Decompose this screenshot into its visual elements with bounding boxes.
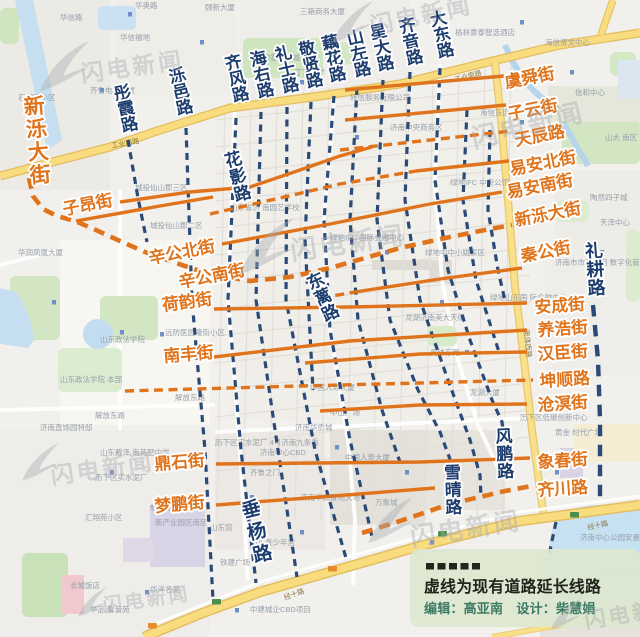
svg-text:华润凤凰大厦: 华润凤凰大厦 — [18, 247, 63, 257]
svg-text:中国人寿大厦: 中国人寿大厦 — [345, 452, 390, 462]
svg-text:格林豪泰智选酒店: 格林豪泰智选酒店 — [455, 27, 515, 37]
svg-text:华信路: 华信路 — [60, 12, 83, 22]
svg-text:养浩街: 养浩街 — [536, 317, 589, 341]
svg-text:山东政法学院: 山东政法学院 — [100, 334, 145, 344]
svg-text:济南中心公园安置项目 和下石河村改造项目: 济南中心公园安置项目 和下石河村改造项目 — [580, 532, 640, 542]
svg-text:黄金 时代广场: 黄金 时代广场 — [555, 427, 603, 437]
svg-text:城投仙山郡三区: 城投仙山郡三区 — [135, 182, 188, 192]
svg-text:济南中心CBD: 济南中心CBD — [260, 447, 306, 457]
svg-text:龙湖大厦: 龙湖大厦 — [470, 387, 500, 397]
svg-text:安成街: 安成街 — [534, 294, 586, 317]
svg-text:绿地IFC 中央公馆: 绿地IFC 中央公馆 — [450, 177, 510, 187]
svg-text:解放东路: 解放东路 — [95, 410, 125, 420]
svg-text:齐川路: 齐川路 — [537, 477, 589, 500]
svg-text:济南中央商务区: 济南中央商务区 — [390, 122, 443, 132]
svg-text:龙湖济南美大天街: 龙湖济南美大天街 — [405, 312, 465, 322]
svg-text:大: 大 — [27, 140, 50, 165]
svg-text:虚线为现有道路延长线路: 虚线为现有道路延长线路 — [424, 577, 601, 596]
svg-text:济南华侨城: 济南华侨城 — [295, 422, 333, 432]
svg-text:象春街: 象春街 — [537, 449, 589, 472]
svg-text:华信福地: 华信福地 — [120, 32, 150, 42]
svg-text:街: 街 — [28, 162, 52, 188]
svg-text:坤顺路: 坤顺路 — [539, 368, 591, 391]
svg-text:绿地中中小姚家区: 绿地中中小姚家区 — [425, 247, 485, 257]
svg-text:山东馆: 山东馆 — [210, 522, 233, 532]
svg-text:汇翔苑小区: 汇翔苑小区 — [85, 512, 123, 522]
svg-text:新产业园区南区: 新产业园区南区 — [155, 517, 208, 527]
svg-text:新: 新 — [23, 93, 46, 119]
svg-text:历下区实水泥厂 4号济南九条香: 历下区实水泥厂 4号济南九条香 — [215, 437, 319, 447]
svg-text:路: 路 — [445, 497, 463, 518]
svg-text:泺: 泺 — [25, 117, 48, 142]
svg-text:沧溟街: 沧溟街 — [537, 392, 589, 415]
svg-text:转信服务有限公司: 转信服务有限公司 — [350, 92, 410, 102]
svg-text:长城饭店: 长城饭店 — [70, 580, 100, 590]
svg-text:陶然四子城: 陶然四子城 — [590, 192, 628, 202]
svg-text:齐鲁之门: 齐鲁之门 — [250, 467, 280, 477]
svg-text:三箱商务大厦: 三箱商务大厦 — [300, 6, 345, 16]
svg-text:海信贤文中心: 海信贤文中心 — [545, 37, 590, 47]
svg-text:汉臣街: 汉臣街 — [537, 341, 589, 364]
svg-text:中建城企CBD项目: 中建城企CBD项目 — [250, 604, 311, 614]
svg-text:路: 路 — [587, 276, 607, 298]
svg-text:路: 路 — [497, 461, 516, 482]
svg-text:颐新大厦: 颐新大厦 — [205, 2, 235, 12]
svg-text:天泽中心: 天泽中心 — [600, 217, 630, 227]
svg-text:城投仙山郡二区: 城投仙山郡二区 — [150, 220, 203, 230]
svg-text:信和中心: 信和中心 — [575, 87, 605, 97]
svg-text:万象城: 万象城 — [375, 497, 398, 507]
svg-text:铁建广场: 铁建广场 — [220, 557, 250, 567]
svg-text:山大 南区: 山大 南区 — [605, 132, 638, 142]
svg-text:华奥路: 华奥路 — [135, 0, 158, 10]
svg-text:济南直饰园特邸: 济南直饰园特邸 — [40, 422, 93, 432]
svg-text:山东政法学院 本部: 山东政法学院 本部 — [60, 374, 123, 384]
